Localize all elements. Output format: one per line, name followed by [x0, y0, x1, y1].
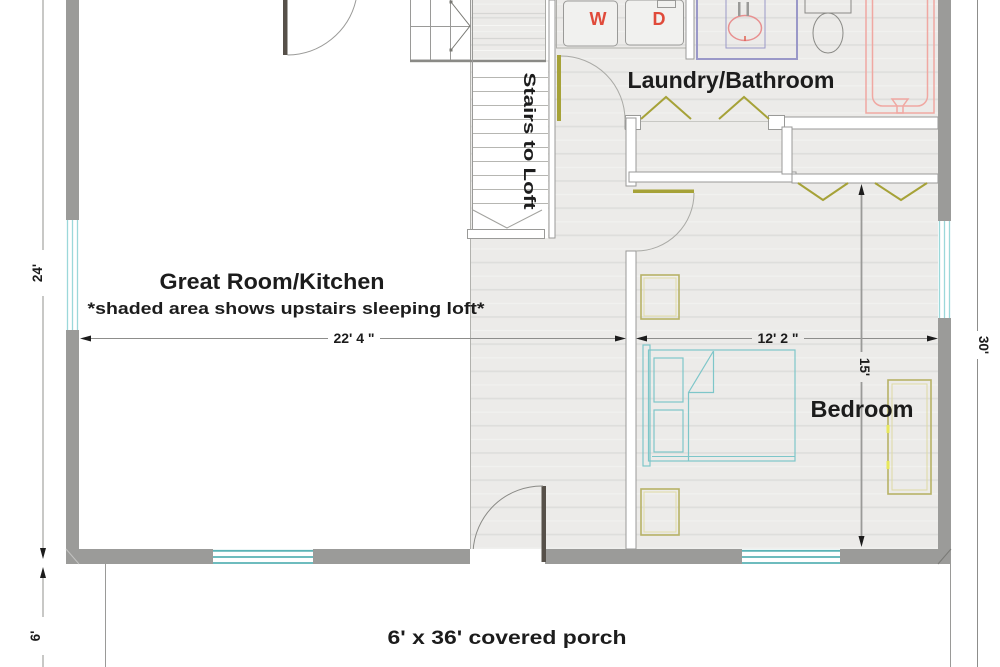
svg-text:D: D	[653, 9, 666, 29]
svg-text:W: W	[590, 9, 607, 29]
svg-text:15': 15'	[857, 358, 872, 376]
svg-text:Great Room/Kitchen: Great Room/Kitchen	[160, 269, 385, 294]
svg-text:12' 2 ": 12' 2 "	[757, 330, 798, 346]
svg-text:Stairs to Loft: Stairs to Loft	[520, 73, 539, 210]
svg-text:6': 6'	[28, 631, 43, 642]
svg-text:22' 4 ": 22' 4 "	[333, 330, 374, 346]
svg-text:30': 30'	[976, 336, 991, 354]
svg-text:6' x 36' covered porch: 6' x 36' covered porch	[388, 628, 627, 649]
svg-text:Bedroom: Bedroom	[811, 396, 914, 422]
svg-text:Laundry/Bathroom: Laundry/Bathroom	[628, 67, 835, 93]
svg-text:*shaded area shows upstairs sl: *shaded area shows upstairs sleeping lof…	[88, 300, 486, 318]
svg-text:24': 24'	[30, 264, 45, 282]
